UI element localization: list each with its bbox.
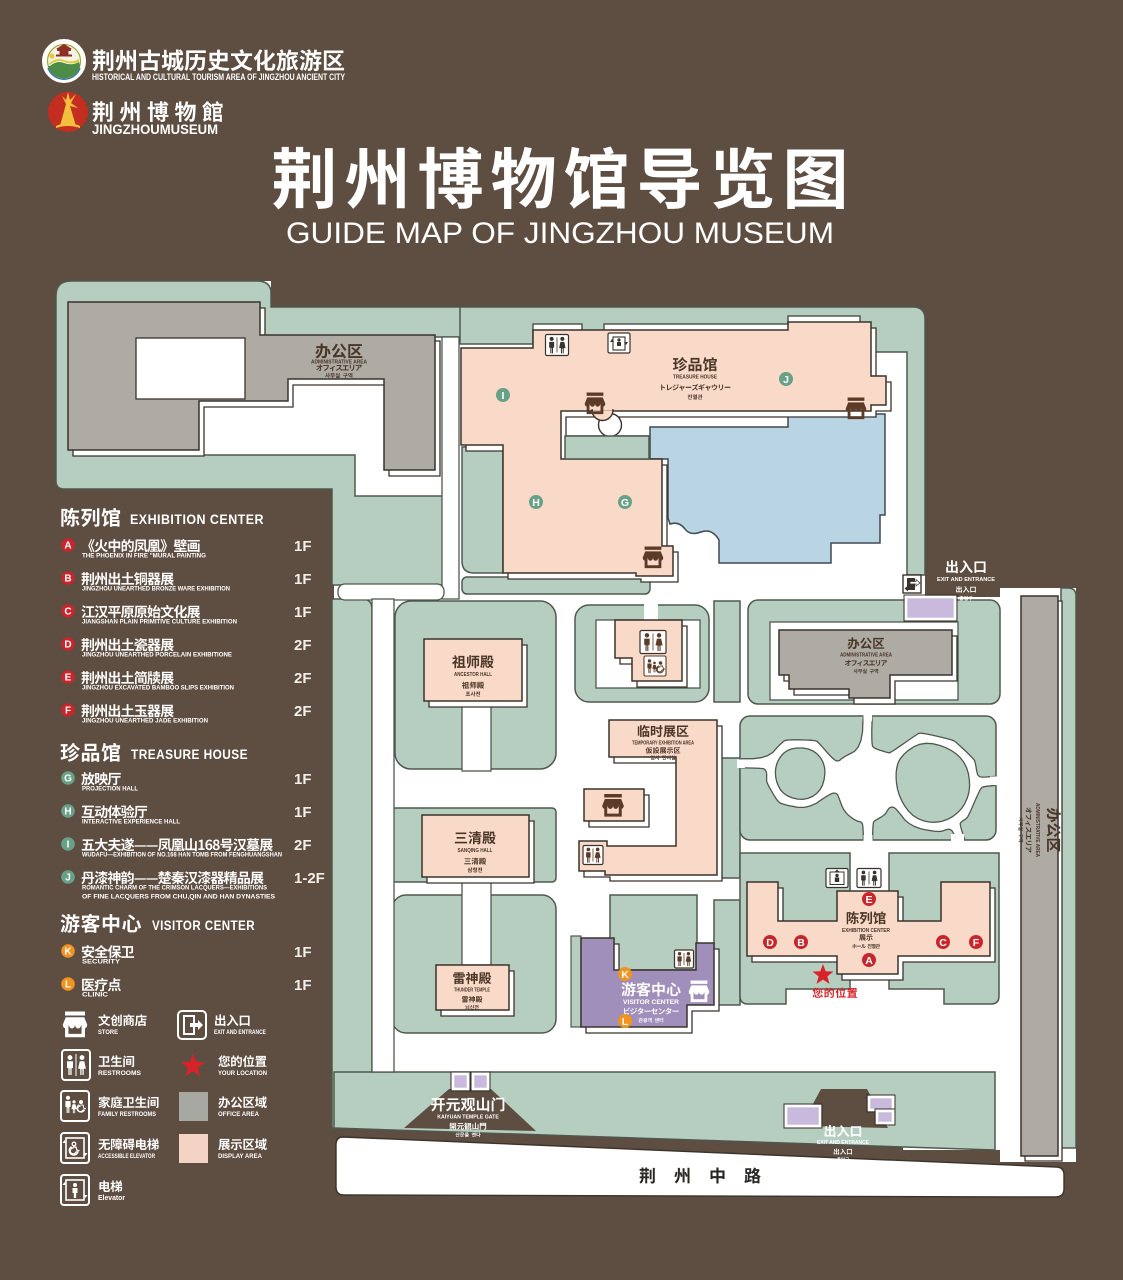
svg-text:F: F — [65, 706, 71, 717]
svg-text:OF FINE LACQUERS FROM CHU,QIN: OF FINE LACQUERS FROM CHU,QIN AND HAN DY… — [82, 894, 276, 901]
svg-text:1F: 1F — [294, 604, 312, 621]
svg-text:PROJECTION HALL: PROJECTION HALL — [82, 786, 138, 793]
svg-text:VISITOR CENTER: VISITOR CENTER — [152, 918, 255, 933]
svg-text:JINGZHOU UNEARTHED PORCELAIN E: JINGZHOU UNEARTHED PORCELAIN EXHIBITIONE — [82, 652, 232, 659]
svg-text:ROMANTIC CHARM OF THE CRIMSON: ROMANTIC CHARM OF THE CRIMSON LACQUERS—E… — [82, 885, 267, 892]
svg-text:TREASURE HOUSE: TREASURE HOUSE — [673, 375, 717, 381]
svg-text:C: C — [939, 937, 947, 949]
svg-text:SECURITY: SECURITY — [82, 959, 121, 966]
svg-text:I: I — [67, 840, 70, 851]
svg-text:1F: 1F — [294, 804, 312, 821]
svg-text:JINGZHOU EXCAVATED BAMBOO SLIP: JINGZHOU EXCAVATED BAMBOO SLIPS EXHIBITI… — [82, 685, 234, 692]
svg-text:WUDAFU—EXHIBITION OF NO.168 HA: WUDAFU—EXHIBITION OF NO.168 HAN TOMB FRO… — [82, 852, 282, 859]
svg-text:A: A — [64, 541, 71, 552]
svg-text:THUNDER TEMPLE: THUNDER TEMPLE — [454, 988, 490, 994]
svg-text:ADMINISTRATIVE AREA: ADMINISTRATIVE AREA — [840, 653, 892, 659]
svg-text:J: J — [783, 374, 789, 386]
svg-text:G: G — [64, 774, 72, 785]
svg-text:E: E — [65, 673, 72, 684]
svg-text:ADMINISTRATIVE AREA: ADMINISTRATIVE AREA — [311, 360, 368, 366]
svg-text:Elevator: Elevator — [98, 1193, 125, 1202]
svg-text:TREASURE HOUSE: TREASURE HOUSE — [131, 747, 248, 762]
svg-text:EXIT AND ENTRANCE: EXIT AND ENTRANCE — [214, 1029, 267, 1036]
svg-text:2F: 2F — [294, 837, 312, 854]
svg-text:TEMPORARY EXHIBITION AREA: TEMPORARY EXHIBITION AREA — [632, 741, 694, 747]
svg-text:B: B — [797, 937, 805, 949]
svg-text:D: D — [766, 937, 774, 949]
svg-text:C: C — [64, 607, 71, 618]
svg-text:1F: 1F — [294, 571, 312, 588]
svg-text:GUIDE MAP OF JINGZHOU MUSEUM: GUIDE MAP OF JINGZHOU MUSEUM — [286, 217, 834, 250]
svg-text:1F: 1F — [294, 771, 312, 788]
svg-text:G: G — [621, 497, 629, 509]
svg-text:1F: 1F — [294, 944, 312, 961]
svg-text:HISTORICAL AND CULTURAL TOURIS: HISTORICAL AND CULTURAL TOURISM AREA OF … — [92, 72, 345, 82]
svg-text:DISPLAY AREA: DISPLAY AREA — [218, 1153, 262, 1160]
svg-text:FAMILY RESTROOMS: FAMILY RESTROOMS — [98, 1111, 157, 1118]
svg-text:L: L — [622, 1016, 629, 1028]
svg-text:A: A — [865, 955, 873, 967]
svg-text:J: J — [65, 873, 71, 884]
svg-text:L: L — [65, 980, 71, 991]
svg-text:2F: 2F — [294, 670, 312, 687]
svg-text:STORE: STORE — [98, 1029, 119, 1036]
svg-text:ANCESTOR HALL: ANCESTOR HALL — [454, 672, 492, 678]
svg-text:OFFICE AREA: OFFICE AREA — [218, 1111, 259, 1118]
svg-text:EXHIBITION CENTER: EXHIBITION CENTER — [130, 512, 264, 527]
svg-text:I: I — [502, 390, 505, 402]
svg-text:JINGZHOU UNEARTHED JADE EXHIBI: JINGZHOU UNEARTHED JADE EXHIBITION — [82, 718, 208, 725]
svg-text:ACCESSIBLE ELEVATOR: ACCESSIBLE ELEVATOR — [98, 1153, 155, 1160]
svg-text:CLINIC: CLINIC — [82, 992, 108, 999]
svg-text:2F: 2F — [294, 637, 312, 654]
svg-text:1-2F: 1-2F — [294, 870, 325, 887]
svg-text:JIANGSHAN PLAIN PRIMITIVE CULT: JIANGSHAN PLAIN PRIMITIVE CULTURE EXHIBI… — [82, 619, 237, 626]
svg-text:H: H — [532, 497, 540, 509]
svg-text:H: H — [64, 807, 71, 818]
svg-text:JINGZHOUMUSEUM: JINGZHOUMUSEUM — [92, 122, 218, 137]
svg-text:K: K — [621, 969, 629, 981]
svg-text:1F: 1F — [294, 977, 312, 994]
svg-text:F: F — [973, 937, 980, 949]
svg-text:KAIYUAN TEMPLE GATE: KAIYUAN TEMPLE GATE — [437, 1115, 499, 1121]
svg-text:THE PHOENIX IN FIRE "MURAL PAI: THE PHOENIX IN FIRE "MURAL PAINTING — [82, 553, 206, 560]
svg-text:K: K — [64, 947, 72, 958]
svg-text:VISITOR CENTER: VISITOR CENTER — [623, 1000, 680, 1006]
svg-text:D: D — [64, 640, 71, 651]
svg-text:1F: 1F — [294, 538, 312, 555]
svg-text:EXHIBITION CENTER: EXHIBITION CENTER — [842, 928, 890, 934]
svg-text:B: B — [64, 574, 71, 585]
svg-text:EXIT AND ENTRANCE: EXIT AND ENTRANCE — [817, 1140, 870, 1146]
svg-text:RESTROOMS: RESTROOMS — [98, 1070, 142, 1077]
svg-text:SANQING HALL: SANQING HALL — [458, 848, 493, 854]
svg-text:INTERACTIVE EXPERIENCE HALL: INTERACTIVE EXPERIENCE HALL — [82, 819, 180, 826]
svg-text:EXIT AND ENTRANCE: EXIT AND ENTRANCE — [937, 577, 995, 583]
svg-text:ADMINISTRATIVE AREA: ADMINISTRATIVE AREA — [1034, 803, 1040, 857]
svg-text:2F: 2F — [294, 703, 312, 720]
svg-text:E: E — [865, 894, 872, 906]
svg-text:JINGZHOU UNEARTHED BRONZE WARE: JINGZHOU UNEARTHED BRONZE WARE EXHIBITIO… — [82, 586, 230, 593]
svg-text:YOUR LOCATION: YOUR LOCATION — [218, 1070, 267, 1077]
